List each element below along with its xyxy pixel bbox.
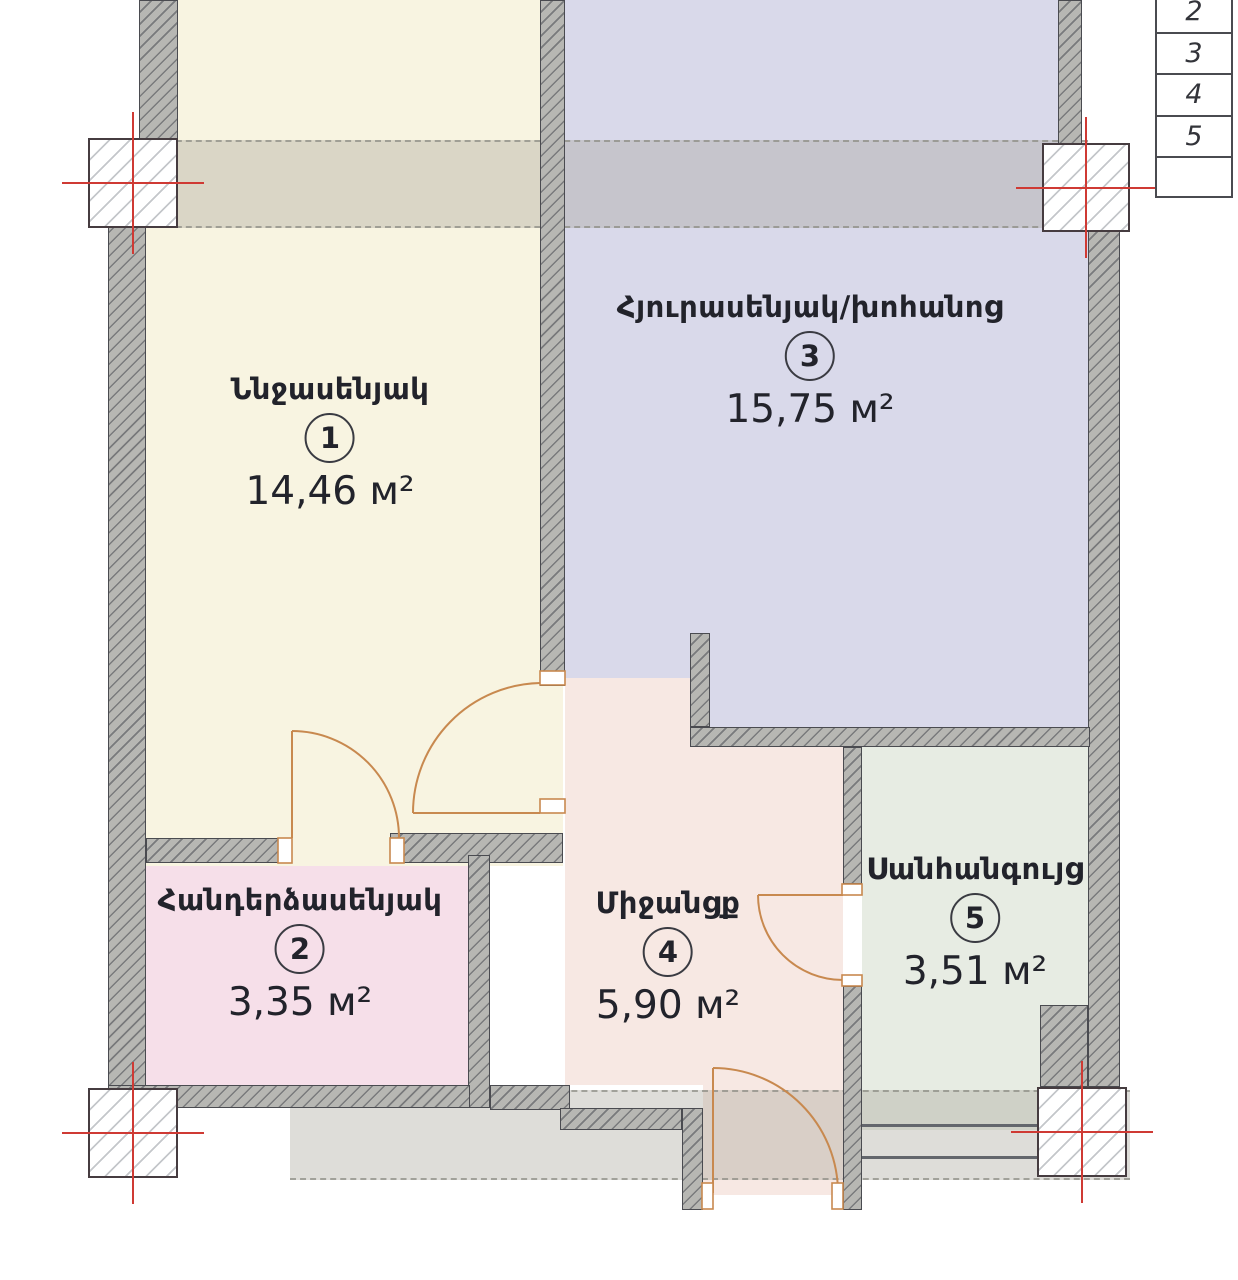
label-bedroom: Ննջասենյակ 1 14,46 м² bbox=[231, 372, 430, 514]
room-name: Ննջասենյակ bbox=[231, 372, 430, 406]
label-corridor: Միջանցք 4 5,90 м² bbox=[596, 886, 741, 1028]
axis-cross-icon bbox=[132, 1062, 134, 1204]
label-livingroom: Հյուրասենյակ/խոհանոց 3 15,75 м² bbox=[617, 290, 1003, 432]
room-name: Միջանցք bbox=[596, 886, 741, 920]
wall-corridor-bathroom bbox=[843, 747, 862, 884]
room-area: 5,90 м² bbox=[596, 983, 740, 1028]
axis-table-cell bbox=[1155, 156, 1233, 198]
wall-corridor-bottom-a bbox=[490, 1085, 570, 1110]
label-bathroom: Սանհանգույց 5 3,51 м² bbox=[866, 852, 1084, 994]
room-number-badge: 3 bbox=[785, 331, 835, 381]
wall-bedroom-bottom-left bbox=[146, 838, 292, 863]
room-name: Սանհանգույց bbox=[866, 852, 1084, 886]
axis-cross-icon bbox=[1081, 1061, 1083, 1203]
column-marker-top-left bbox=[88, 138, 178, 228]
wall-right bbox=[1088, 228, 1120, 1087]
room-area: 3,35 м² bbox=[228, 980, 372, 1025]
column-marker-top-right bbox=[1042, 143, 1130, 232]
axis-table: 2 3 4 5 bbox=[1155, 0, 1233, 198]
room-name: Հյուրասենյակ/խոհանոց bbox=[617, 290, 1003, 324]
column-marker-bottom-left bbox=[88, 1088, 178, 1178]
slab-band-top bbox=[146, 140, 1088, 228]
room-number-badge: 5 bbox=[950, 893, 1000, 943]
room-number-badge: 4 bbox=[643, 927, 693, 977]
wall-left-upper bbox=[139, 0, 178, 148]
room-area: 15,75 м² bbox=[725, 387, 894, 432]
wall-right-upper bbox=[1058, 0, 1082, 148]
axis-table-cell: 3 bbox=[1155, 32, 1233, 74]
axis-table-cell: 4 bbox=[1155, 73, 1233, 115]
axis-cross-icon bbox=[132, 112, 134, 254]
room-name: Հանդերձասենյակ bbox=[158, 883, 443, 917]
column-marker-bottom-right bbox=[1037, 1087, 1127, 1177]
wall-dressing-corridor bbox=[468, 855, 490, 1108]
room-number-badge: 2 bbox=[275, 924, 325, 974]
floor-plan-canvas: Ննջասենյակ 1 14,46 м² Հյուրասենյակ/խոհան… bbox=[0, 0, 1238, 1280]
axis-cross-icon bbox=[1085, 117, 1087, 258]
wall-vestibule-left bbox=[682, 1108, 703, 1210]
label-dressing: Հանդերձասենյակ 2 3,35 м² bbox=[158, 883, 443, 1025]
wall-livingroom-bathroom bbox=[690, 727, 1090, 747]
room-area: 3,51 м² bbox=[903, 949, 1047, 994]
wall-left bbox=[108, 148, 146, 1108]
room-area: 14,46 м² bbox=[245, 469, 414, 514]
room-number-badge: 1 bbox=[305, 413, 355, 463]
axis-table-cell: 5 bbox=[1155, 115, 1233, 157]
wall-bedroom-livingroom bbox=[540, 0, 565, 686]
wall-vestibule-right bbox=[843, 986, 862, 1210]
wall-corridor-bottom-b bbox=[560, 1108, 682, 1130]
axis-table-cell: 2 bbox=[1155, 0, 1233, 32]
wall-livingroom-stub bbox=[690, 633, 710, 727]
